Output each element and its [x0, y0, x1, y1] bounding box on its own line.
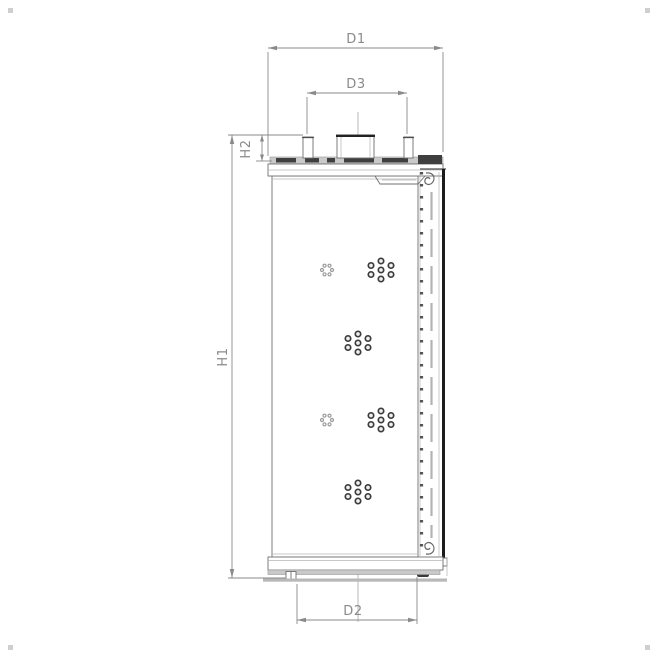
filter-element-body — [272, 176, 418, 557]
center-tab — [337, 135, 374, 158]
top-seal — [418, 155, 442, 164]
perforation-hole — [368, 263, 373, 268]
perforation-hole — [388, 263, 393, 268]
perforation-hole — [388, 272, 393, 277]
arrowhead — [434, 46, 443, 50]
bottom-end-cap — [263, 557, 447, 582]
perforation-hole — [368, 272, 373, 277]
dim-label-d3: D3 — [346, 77, 365, 92]
bottom-spring-hook — [425, 543, 434, 555]
left-tab — [303, 137, 313, 158]
element-outline — [272, 176, 418, 557]
perforation-hole — [365, 494, 370, 499]
perforation-hole — [378, 408, 383, 413]
arrowhead — [230, 135, 234, 144]
dimension-h2: H2 — [239, 135, 272, 161]
perforation-hole — [378, 417, 383, 422]
dim-label-h2: H2 — [239, 139, 254, 158]
bottom-cap-rim — [268, 557, 443, 570]
perforation-hole — [365, 485, 370, 490]
dim-label-d2: D2 — [343, 604, 362, 619]
perforation-hole — [365, 345, 370, 350]
dimension-d2: D2 — [297, 577, 417, 624]
arrowhead — [268, 46, 277, 50]
perforation-hole — [345, 345, 350, 350]
perforation-hole — [345, 336, 350, 341]
bottom-plate — [263, 579, 447, 582]
perforation-hole — [388, 422, 393, 427]
perforation-hole — [378, 258, 383, 263]
perforation-hole — [388, 413, 393, 418]
arrowhead — [260, 135, 264, 142]
technical-drawing: D1 D3 H1 H2 D2 — [0, 0, 658, 658]
arrowhead — [297, 618, 306, 622]
outer-shell-wall — [417, 169, 447, 577]
dim-label-d1: D1 — [346, 32, 365, 47]
perforation-hole — [355, 489, 360, 494]
arrowhead — [408, 618, 417, 622]
mounting-tabs — [302, 135, 414, 158]
perforation-hole — [355, 480, 360, 485]
perforation-hole — [368, 413, 373, 418]
perforation-hole — [355, 498, 360, 503]
perforation-hole — [345, 494, 350, 499]
perforation-hole — [368, 422, 373, 427]
perforation-hole — [345, 485, 350, 490]
perforation-hole — [378, 267, 383, 272]
perforation-hole — [355, 349, 360, 354]
perforation-hole — [365, 336, 370, 341]
drawing-sheet: D1 D3 H1 H2 D2 — [0, 0, 658, 658]
arrowhead — [398, 91, 407, 95]
perforation-hole — [355, 340, 360, 345]
arrowhead — [230, 569, 234, 578]
arrowhead — [260, 155, 264, 162]
dim-label-h1: H1 — [216, 347, 231, 366]
arrowhead — [307, 91, 316, 95]
perforation-hole — [378, 426, 383, 431]
perforation-hole — [355, 331, 360, 336]
right-tab — [404, 137, 413, 158]
dimension-d3: D3 — [307, 77, 407, 134]
perforation-hole — [378, 276, 383, 281]
